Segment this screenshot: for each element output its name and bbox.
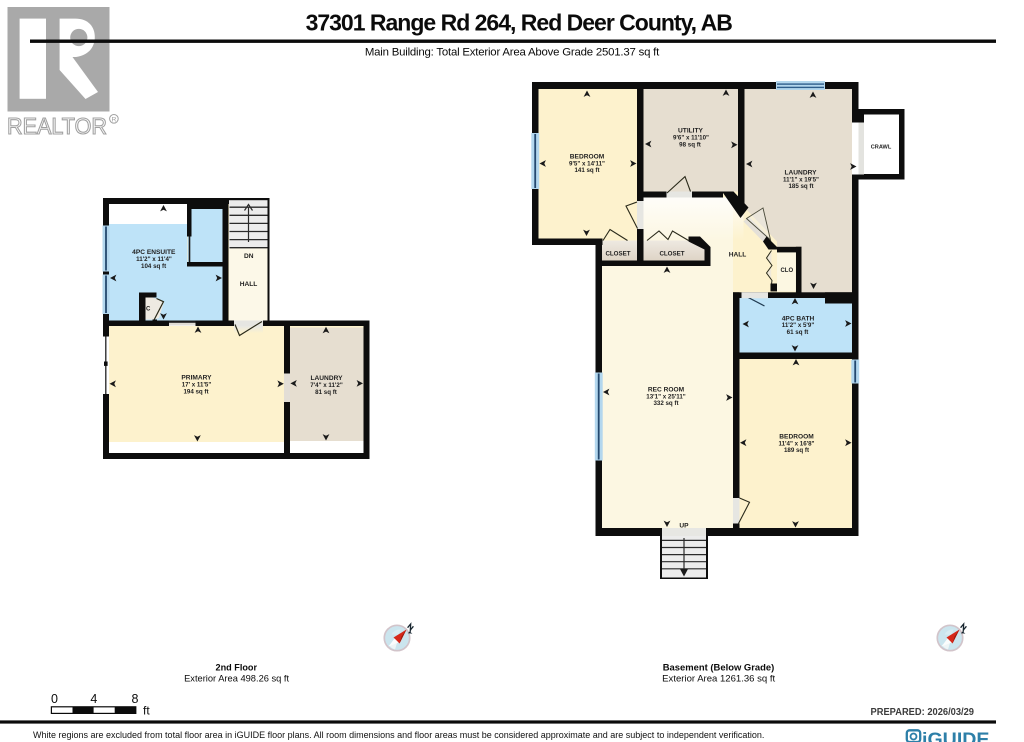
svg-text:REC ROOM: REC ROOM [648,387,685,394]
svg-text:CLOSET: CLOSET [605,251,630,258]
svg-text:Exterior Area 498.26 sq ft: Exterior Area 498.26 sq ft [184,673,289,684]
svg-text:BEDROOM: BEDROOM [779,434,814,441]
svg-text:37301 Range Rd 264, Red Deer C: 37301 Range Rd 264, Red Deer County, AB [306,10,733,36]
svg-text:White regions are excluded fro: White regions are excluded from total fl… [33,730,764,740]
svg-text:DN: DN [244,253,254,260]
svg-text:Main Building: Total Exterior: Main Building: Total Exterior Area Above… [365,47,660,59]
svg-text:332 sq ft: 332 sq ft [653,400,678,407]
svg-text:UTILITY: UTILITY [678,128,704,135]
svg-text:189 sq ft: 189 sq ft [784,447,809,454]
svg-text:PRIMARY: PRIMARY [181,375,212,382]
svg-text:HALL: HALL [240,281,258,288]
svg-text:HALL: HALL [729,252,747,259]
svg-text:LAUNDRY: LAUNDRY [785,170,818,177]
svg-text:C: C [146,307,151,313]
svg-text:LAUNDRY: LAUNDRY [311,375,344,382]
svg-text:4PC ENSUITE: 4PC ENSUITE [132,249,176,256]
svg-text:BEDROOM: BEDROOM [570,154,605,161]
svg-text:81 sq ft: 81 sq ft [315,389,337,396]
svg-text:4: 4 [90,692,97,706]
svg-text:UP: UP [679,523,689,530]
svg-text:141 sq ft: 141 sq ft [574,167,599,174]
svg-text:104 sq ft: 104 sq ft [141,263,166,270]
svg-text:CRAWL: CRAWL [871,145,892,151]
svg-text:9'6" x 11'10": 9'6" x 11'10" [673,135,709,142]
svg-text:17' x 11'5": 17' x 11'5" [182,382,212,389]
svg-text:REALTOR: REALTOR [7,113,107,139]
svg-text:185 sq ft: 185 sq ft [788,183,813,190]
svg-text:ft: ft [143,704,150,718]
svg-text:iGUIDE: iGUIDE [922,730,990,742]
svg-text:Basement (Below Grade): Basement (Below Grade) [663,661,775,672]
svg-text:61 sq ft: 61 sq ft [787,329,809,336]
svg-text:PREPARED: 2026/03/29: PREPARED: 2026/03/29 [871,707,975,718]
svg-text:Exterior Area 1261.36 sq ft: Exterior Area 1261.36 sq ft [662,673,775,684]
svg-text:11'2" x 11'4": 11'2" x 11'4" [136,256,172,263]
svg-text:R: R [111,116,116,123]
svg-text:194 sq ft: 194 sq ft [183,389,208,396]
svg-text:98 sq ft: 98 sq ft [679,142,701,149]
svg-text:0: 0 [51,692,58,706]
svg-text:CLOSET: CLOSET [659,251,684,258]
svg-text:2nd Floor: 2nd Floor [216,661,258,672]
svg-text:CLO: CLO [780,268,793,274]
svg-text:8: 8 [132,692,139,706]
